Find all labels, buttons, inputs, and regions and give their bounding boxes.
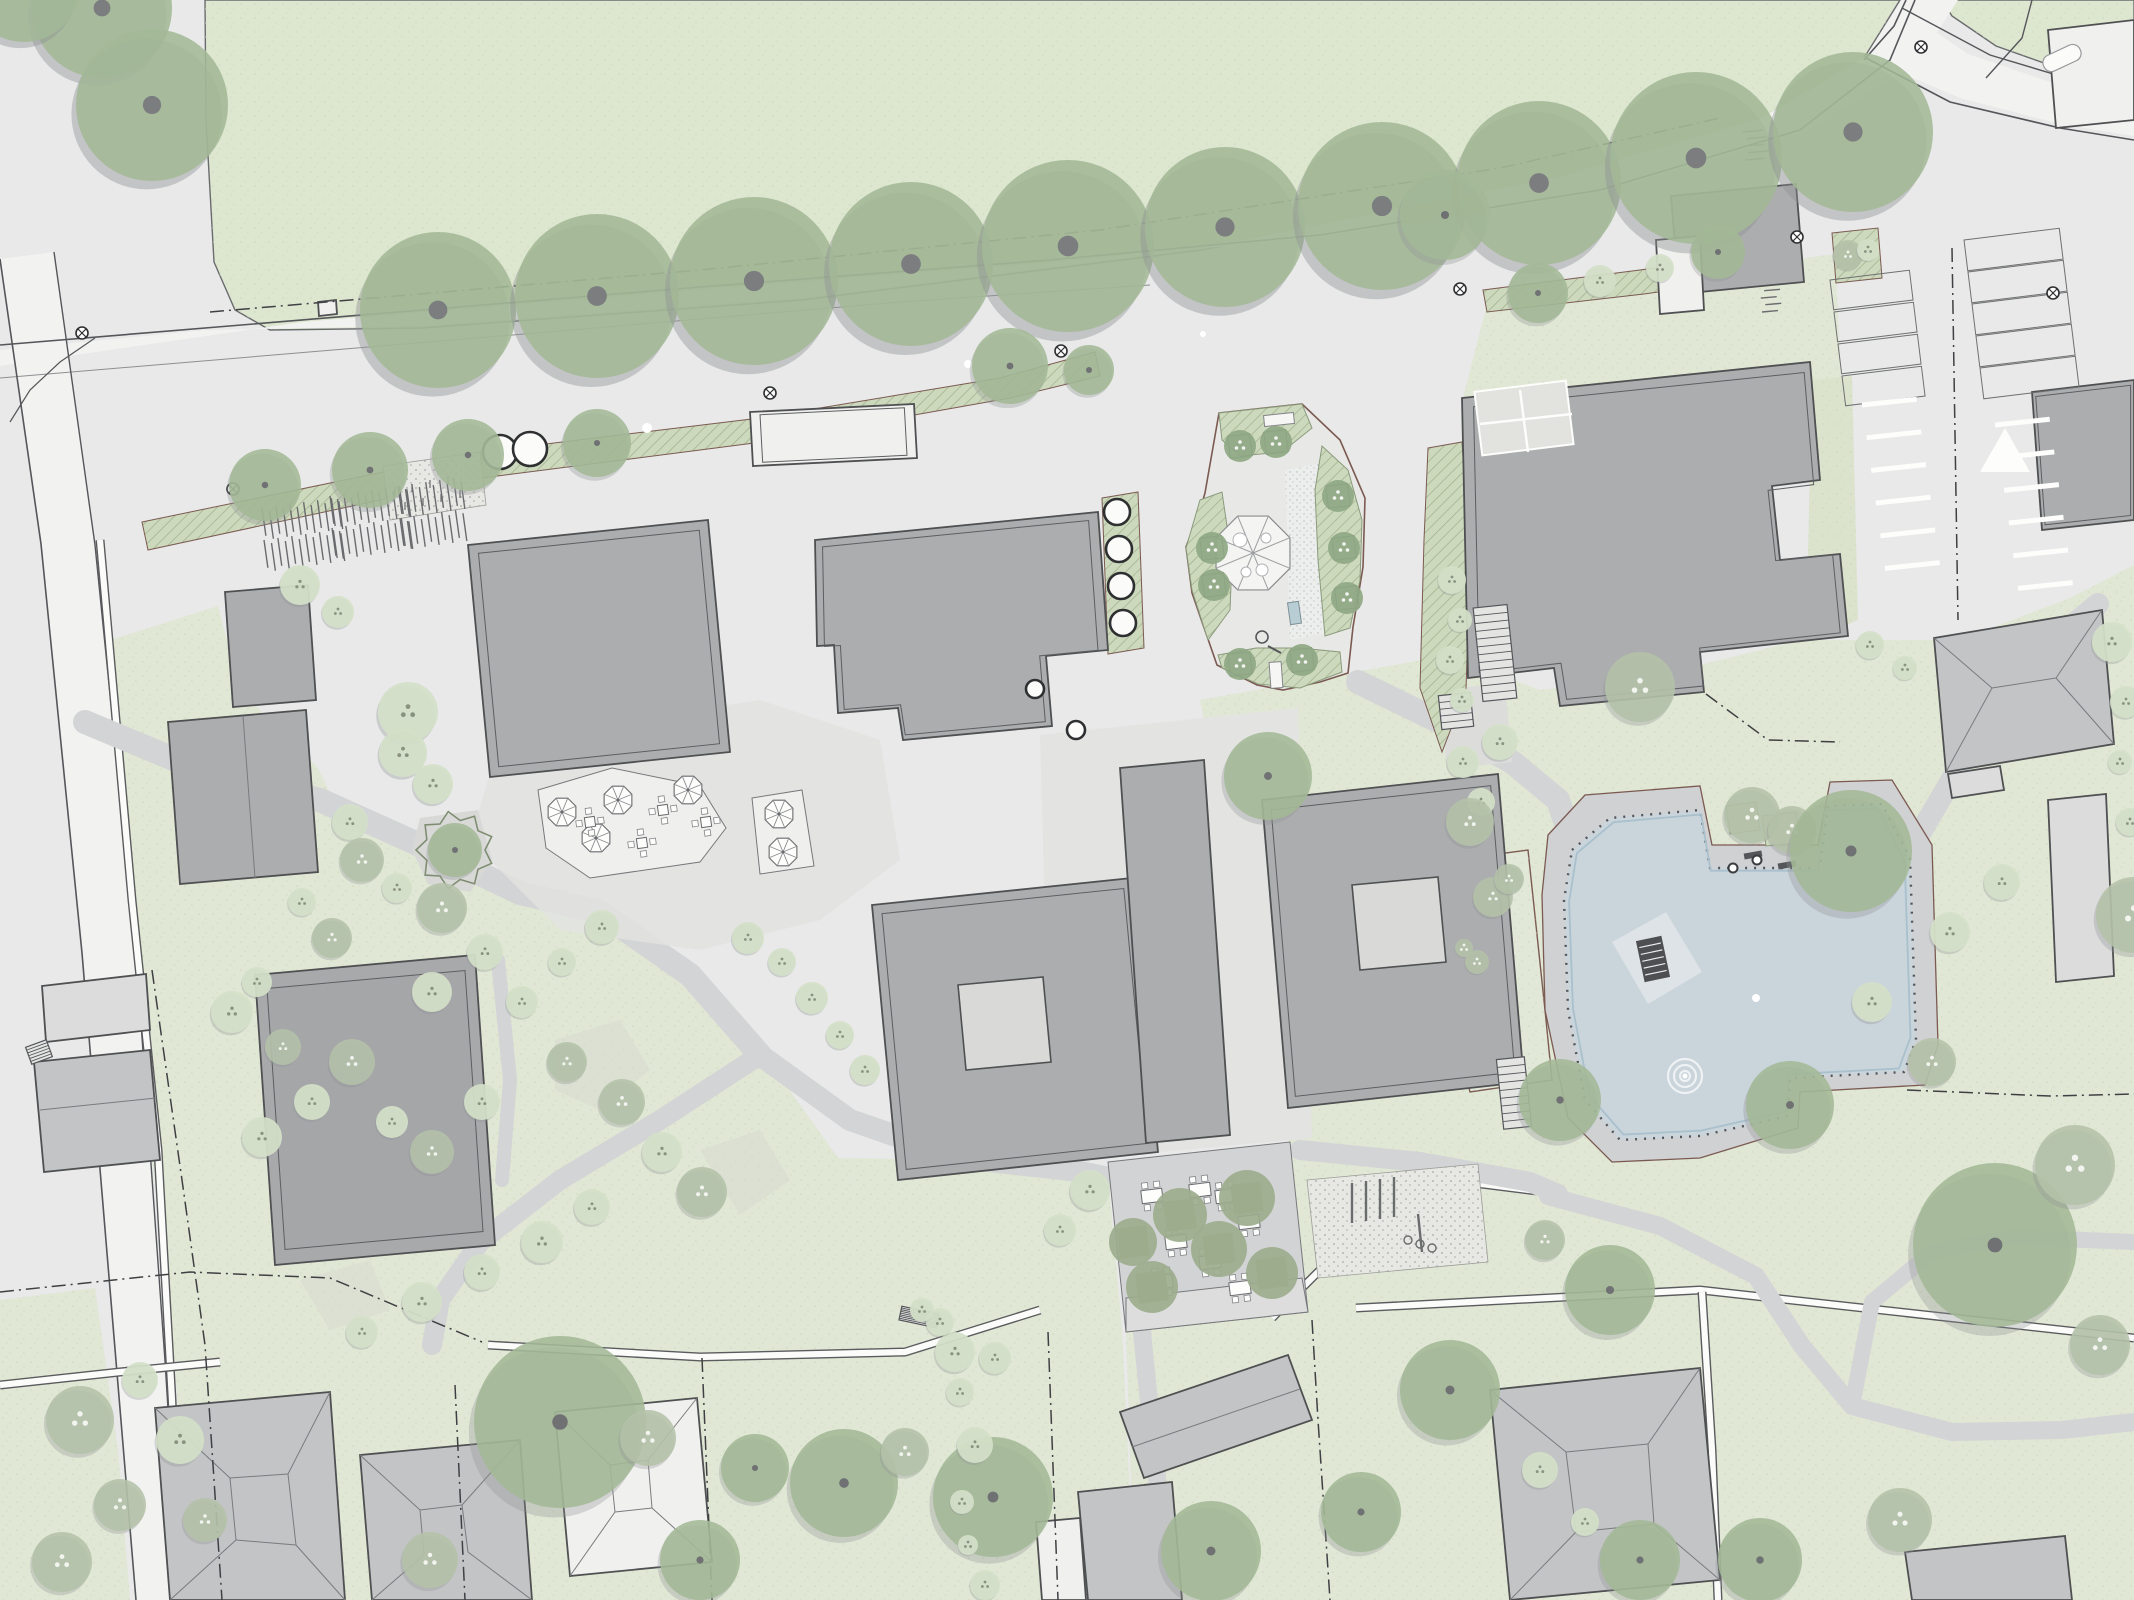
tree-mark: [430, 1146, 434, 1150]
tree-mark: [1543, 1235, 1546, 1238]
cafe-chair: [701, 808, 708, 815]
tree-mark: [1464, 762, 1467, 765]
tree-mark: [646, 1431, 650, 1435]
tree-mark: [1501, 742, 1504, 745]
tree-trunk-dot: [744, 271, 764, 291]
tree: [402, 1532, 458, 1588]
tree-mark: [434, 992, 437, 995]
tree-mark: [350, 1056, 354, 1060]
tree-mark: [1945, 932, 1948, 935]
tree-mark: [60, 1554, 65, 1559]
tree-trunk-dot: [1636, 1556, 1643, 1563]
picnic-chair: [1244, 1295, 1251, 1302]
plaza-layer: [1186, 404, 1365, 690]
tree-mark: [1449, 656, 1452, 659]
tree-trunk-dot: [1058, 236, 1079, 257]
parasol-pole: [782, 851, 785, 854]
tree-mark: [77, 1411, 82, 1416]
marker-dot: [1200, 331, 1206, 337]
tree-ring-planter: [513, 432, 547, 466]
tree-mark: [1304, 660, 1308, 664]
tree-mark: [1632, 687, 1638, 693]
terrace-tree: [1246, 1247, 1298, 1299]
tree-mark: [1235, 446, 1239, 450]
tree-mark: [2127, 702, 2130, 705]
tree-trunk-dot: [1686, 148, 1707, 169]
tree: [46, 1386, 114, 1454]
tree-mark: [2125, 915, 2131, 921]
tree: [1852, 982, 1892, 1022]
tree-mark: [598, 927, 601, 930]
tree-trunk-dot: [594, 440, 600, 446]
tree-trunk-dot: [752, 1465, 758, 1471]
tree-mark: [1491, 892, 1494, 895]
tree-mark: [1901, 668, 1904, 671]
picnic-chair: [1253, 1229, 1260, 1236]
tree-mark: [864, 1066, 867, 1069]
tree-trunk-dot: [988, 1492, 999, 1503]
cafe-chair: [588, 830, 595, 837]
tree: [1908, 1038, 1956, 1086]
tree-mark: [346, 822, 349, 825]
tree-mark: [778, 962, 781, 965]
tree-trunk-dot: [1556, 1096, 1563, 1103]
play-surface: [1307, 1164, 1488, 1278]
tree: [211, 991, 253, 1033]
tree: [2035, 1125, 2115, 1205]
tree-mark: [1459, 762, 1462, 765]
tree-mark: [1056, 1230, 1059, 1233]
tree: [910, 1298, 934, 1322]
tree-mark: [264, 1137, 267, 1140]
tree-mark: [704, 1192, 708, 1196]
tree-mark: [1468, 816, 1472, 820]
tree-mark: [347, 1062, 351, 1066]
tree-mark: [1892, 1520, 1897, 1525]
tree: [2108, 750, 2132, 774]
tree-trunk-dot: [839, 1478, 849, 1488]
tree-trunk-dot: [94, 0, 111, 16]
tree: [464, 1254, 500, 1290]
tree-mark: [1463, 944, 1466, 947]
tree-mark: [523, 1002, 526, 1005]
tree: [412, 972, 452, 1012]
tree-mark: [1599, 277, 1602, 280]
tree-ring-planter: [1106, 536, 1132, 562]
tree: [1868, 1488, 1932, 1552]
tree-trunk-dot: [1606, 1286, 1614, 1294]
tree-mark: [1478, 962, 1481, 965]
tree-mark: [1508, 875, 1511, 878]
tree-mark: [83, 1420, 88, 1425]
tree: [732, 922, 764, 954]
tree: [585, 910, 619, 944]
tree-mark: [114, 1505, 118, 1509]
tree: [410, 1130, 454, 1174]
tree: [1605, 652, 1675, 722]
tree-mark: [1871, 645, 1874, 648]
tree-mark: [357, 860, 361, 864]
tree-mark: [1461, 696, 1464, 699]
tree-trunk-dot: [1264, 772, 1272, 780]
tree: [826, 1021, 854, 1049]
tree-mark: [603, 927, 606, 930]
cafe-chair: [628, 841, 635, 848]
cafe-chair: [658, 796, 665, 803]
tree-mark: [918, 1310, 921, 1313]
terrace-tree: [1191, 1221, 1247, 1277]
tree-mark: [1844, 255, 1847, 258]
tree: [958, 1535, 978, 1555]
play-element: [1261, 533, 1271, 543]
marker-dot: [1752, 994, 1760, 1002]
tree-mark: [562, 1062, 565, 1065]
tree-mark: [351, 822, 354, 825]
tree-mark: [813, 998, 816, 1001]
tree: [467, 934, 503, 970]
building: [468, 520, 730, 777]
tree: [881, 1428, 929, 1476]
tree-mark: [1300, 654, 1304, 658]
tree-mark: [1540, 1240, 1543, 1243]
planter-tree: [1328, 532, 1360, 564]
tree-mark: [1342, 598, 1346, 602]
tree-mark: [330, 933, 333, 936]
tree-ring-planter: [1026, 680, 1044, 698]
tree-mark: [1488, 897, 1491, 900]
tree-mark: [1637, 678, 1643, 684]
tree-mark: [1539, 1465, 1542, 1468]
tree-trunk-dot: [143, 96, 161, 114]
tree-trunk-dot: [1446, 1386, 1455, 1395]
tree: [288, 888, 316, 916]
tree-mark: [2122, 702, 2125, 705]
tree-mark: [1866, 645, 1869, 648]
tree-mark: [432, 1560, 436, 1564]
tree-mark: [178, 1434, 182, 1438]
tree-ring-planter: [1108, 573, 1134, 599]
tree: [1646, 254, 1674, 282]
tree: [94, 1479, 146, 1531]
tree-mark: [2066, 1165, 2072, 1171]
picnic-chair: [1168, 1250, 1175, 1257]
tree-mark: [311, 1097, 314, 1100]
tree-mark: [1661, 268, 1664, 271]
tree-mark: [1342, 542, 1346, 546]
tree-mark: [256, 978, 259, 981]
tree-mark: [939, 1318, 942, 1321]
tree-mark: [1242, 446, 1246, 450]
tree-mark: [1346, 548, 1350, 552]
tree-mark: [565, 1057, 568, 1060]
tree-mark: [258, 982, 261, 985]
cafe-chair: [692, 820, 699, 827]
tree-mark: [1061, 1230, 1064, 1233]
tree-mark: [486, 952, 489, 955]
tree-mark: [866, 1070, 869, 1073]
tree-mark: [1586, 1522, 1589, 1525]
tree-trunk-dot: [1846, 846, 1857, 857]
tree-mark: [1333, 496, 1337, 500]
tree-mark: [354, 1062, 358, 1066]
tree-mark: [1451, 576, 1454, 579]
tree: [796, 982, 828, 1014]
tree: [402, 1282, 442, 1322]
tree-mark: [327, 938, 330, 941]
tree-trunk-dot: [465, 452, 471, 458]
tree-mark: [1059, 1226, 1062, 1229]
tree-mark: [260, 1132, 263, 1135]
tree-mark: [360, 854, 364, 858]
tree-mark: [174, 1440, 178, 1444]
tree-mark: [295, 585, 298, 588]
tree-mark: [1210, 542, 1214, 546]
tree-mark: [811, 994, 814, 997]
tree-mark: [744, 938, 747, 941]
planter-tree: [1224, 430, 1256, 462]
tree-mark: [2110, 637, 2113, 640]
tree-mark: [2121, 762, 2124, 765]
tree-mark: [401, 712, 406, 717]
tree-mark: [339, 612, 342, 615]
tree-mark: [1659, 264, 1662, 267]
tree-mark: [974, 1440, 977, 1443]
tree-mark: [956, 1392, 959, 1395]
cafe-chair: [671, 805, 678, 812]
tree-mark: [601, 923, 604, 926]
tree-mark: [364, 860, 368, 864]
tree-mark: [1930, 1056, 1934, 1060]
tree-mark: [64, 1562, 69, 1567]
tree-trunk-dot: [1529, 173, 1549, 193]
tree-mark: [1596, 281, 1599, 284]
tree-mark: [561, 958, 564, 961]
tree-mark: [1336, 490, 1340, 494]
tree-mark: [1462, 758, 1465, 761]
tree-mark: [1934, 1062, 1938, 1066]
cafe-chair: [650, 838, 657, 845]
tree-mark: [976, 1445, 979, 1448]
tree-mark: [298, 580, 301, 583]
tree-trunk-dot: [1372, 196, 1392, 216]
tree-mark: [363, 1332, 366, 1335]
terrace-tree: [1126, 1261, 1178, 1313]
tree: [574, 1189, 610, 1225]
tree-mark: [410, 712, 415, 717]
tree-mark: [521, 998, 524, 1001]
tree-mark: [620, 1096, 624, 1100]
tree-trunk-dot: [452, 847, 458, 853]
tree-mark: [1867, 1002, 1870, 1005]
tree-mark: [1085, 1190, 1088, 1193]
tree: [1450, 688, 1474, 712]
tree-mark: [424, 1302, 427, 1305]
tree: [242, 1117, 282, 1157]
courtyard: [958, 977, 1051, 1070]
tree-mark: [1870, 997, 1873, 1000]
tree-mark: [957, 1352, 960, 1355]
tree-mark: [1584, 1518, 1587, 1521]
tree-mark: [2125, 698, 2128, 701]
cafe-table: [657, 804, 668, 815]
tree-mark: [308, 1102, 311, 1105]
tree-trunk-dot: [1215, 217, 1234, 236]
tree-mark: [1278, 442, 1282, 446]
tree-mark: [1242, 664, 1246, 668]
tree-mark: [55, 1562, 60, 1567]
tree-mark: [2126, 822, 2129, 825]
tree-mark: [1849, 255, 1852, 258]
tree-trunk-dot: [429, 301, 448, 320]
tree-trunk-dot: [1786, 1101, 1794, 1109]
tree-mark: [1453, 580, 1456, 583]
picnic-chair: [1153, 1181, 1160, 1188]
plaza-bench: [1269, 662, 1283, 689]
tree-mark: [337, 608, 340, 611]
tree-mark: [302, 585, 305, 588]
tree-mark: [2003, 882, 2006, 885]
picnic-chair: [1229, 1274, 1236, 1281]
picnic-chair: [1189, 1176, 1196, 1183]
tree-mark: [981, 1585, 984, 1588]
tree-mark: [964, 1545, 967, 1548]
tree-mark: [641, 1438, 645, 1442]
tree-mark: [2119, 758, 2122, 761]
tree-mark: [1869, 250, 1872, 253]
tree-mark: [1349, 598, 1353, 602]
tree-mark: [1476, 958, 1479, 961]
tree-mark: [428, 1553, 432, 1557]
tree: [642, 1132, 682, 1172]
tree-mark: [200, 1520, 204, 1524]
tree-mark: [1214, 548, 1218, 552]
tree-mark: [986, 1585, 989, 1588]
tree-mark: [1473, 962, 1476, 965]
building: [2048, 20, 2134, 128]
tree-mark: [1864, 250, 1867, 253]
tree-trunk-dot: [1843, 122, 1862, 141]
cafe-chair: [585, 808, 592, 815]
tree-mark: [1238, 658, 1242, 662]
tree-mark: [397, 753, 401, 757]
tree-mark: [1451, 660, 1454, 663]
tree-mark: [1235, 664, 1239, 668]
tree-mark: [1902, 1520, 1907, 1525]
tree-mark: [588, 1207, 591, 1210]
tree-mark: [427, 1152, 431, 1156]
tree: [242, 967, 272, 997]
tree-mark: [406, 704, 411, 709]
tree-mark: [1465, 948, 1468, 951]
tree-mark: [182, 1440, 186, 1444]
building: [34, 1050, 160, 1172]
planter-tree: [1331, 582, 1363, 614]
tree-mark: [1874, 1002, 1877, 1005]
tree-mark: [478, 1272, 481, 1275]
tree-mark: [1952, 932, 1955, 935]
tree-mark: [2107, 642, 2110, 645]
building: [1934, 610, 2114, 772]
site-plan-viewport: Campus landscape site plan: [0, 0, 2134, 1600]
tree-mark: [991, 1358, 994, 1361]
tree-mark: [2001, 877, 2004, 880]
building: [750, 404, 917, 466]
tree-mark: [122, 1505, 126, 1509]
tree-mark: [361, 1328, 364, 1331]
tree: [464, 1084, 500, 1120]
tree-mark: [1904, 664, 1907, 667]
tree-mark: [624, 1102, 628, 1106]
tree: [1856, 631, 1884, 659]
tree-mark: [1216, 585, 1220, 589]
tree: [1525, 1220, 1565, 1260]
tree-mark: [136, 1380, 139, 1383]
tree-mark: [2114, 642, 2117, 645]
tree-mark: [1463, 700, 1466, 703]
tree-mark: [544, 1242, 547, 1245]
tree-mark: [1460, 948, 1463, 951]
bollard: [1753, 856, 1762, 865]
tree: [950, 1490, 974, 1514]
tree-trunk-dot: [696, 1556, 703, 1563]
tree-mark: [1458, 700, 1461, 703]
tree: [1930, 912, 1970, 952]
tree-mark: [591, 1202, 594, 1205]
tree: [1984, 864, 2020, 900]
parasol-pole: [778, 813, 781, 816]
cafe-table: [700, 816, 711, 827]
picnic-chair: [1141, 1182, 1148, 1189]
tree-mark: [484, 947, 487, 950]
tree-mark: [1345, 592, 1349, 596]
tree: [1438, 566, 1466, 594]
parasol-pole: [595, 837, 598, 840]
tree: [1447, 746, 1479, 778]
tree-mark: [961, 1498, 964, 1501]
tree-ring-planter: [1067, 721, 1085, 739]
tree-mark: [518, 1002, 521, 1005]
tree: [1465, 950, 1489, 974]
tree: [183, 1498, 227, 1542]
tree-mark: [1869, 641, 1872, 644]
tree: [1436, 646, 1464, 674]
bollard: [1729, 864, 1738, 873]
tree-mark: [1536, 1470, 1539, 1473]
tree-mark: [1906, 668, 1909, 671]
tree-mark: [1456, 620, 1459, 623]
tree: [1446, 798, 1494, 846]
tree: [1448, 608, 1472, 632]
planter-tree: [1198, 569, 1230, 601]
tree-mark: [1754, 815, 1758, 819]
tree-mark: [660, 1147, 663, 1150]
tree-mark: [1745, 815, 1749, 819]
tree-trunk-dot: [1441, 211, 1449, 219]
tree-mark: [563, 962, 566, 965]
cafe-chair: [661, 818, 668, 825]
tree-mark: [298, 902, 301, 905]
tree-mark: [961, 1392, 964, 1395]
tree-mark: [483, 1272, 486, 1275]
building: [2048, 794, 2114, 982]
tree-trunk-dot: [1007, 363, 1014, 370]
cafe-chair: [640, 851, 647, 858]
play-element: [1256, 564, 1268, 576]
tree-mark: [301, 898, 304, 901]
tree-mark: [1088, 1185, 1091, 1188]
tree: [32, 1532, 92, 1592]
tree-mark: [423, 1560, 427, 1564]
